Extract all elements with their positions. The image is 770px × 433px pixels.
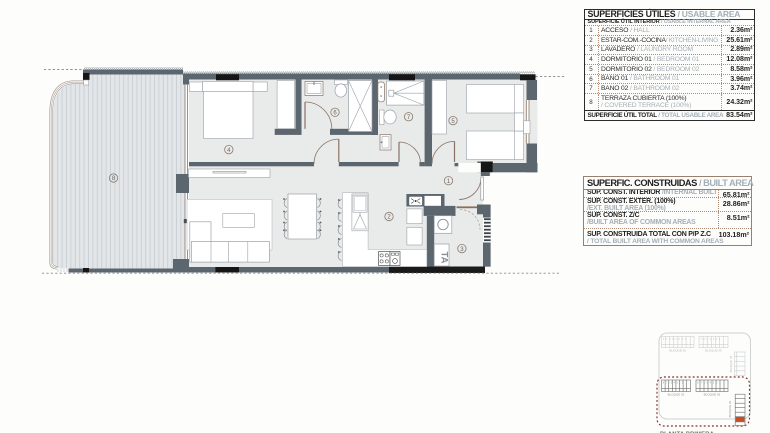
svg-text:BLOQUE 05: BLOQUE 05 — [705, 349, 722, 353]
svg-text:BLOQUE 02: BLOQUE 02 — [668, 392, 685, 396]
svg-text:87654321: 87654321 — [663, 383, 685, 385]
svg-text:BLOQUE 01: BLOQUE 01 — [728, 400, 732, 417]
svg-text:87654321: 87654321 — [697, 383, 722, 385]
svg-text:TA: TA — [439, 252, 450, 264]
svg-text:BLOQUE 04: BLOQUE 04 — [729, 355, 733, 372]
svg-text:87654321: 87654321 — [663, 339, 688, 341]
svg-text:BLOQUE 03: BLOQUE 03 — [704, 392, 721, 396]
svg-text:7654321: 7654321 — [700, 339, 722, 341]
svg-text:BLOQUE 06: BLOQUE 06 — [669, 349, 686, 353]
